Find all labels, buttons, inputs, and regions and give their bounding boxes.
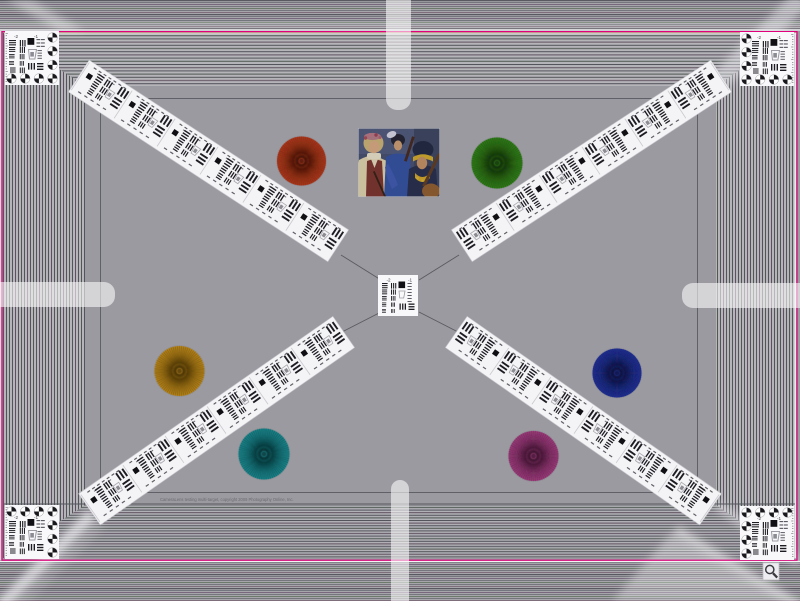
svg-text:-1: -1	[408, 278, 413, 283]
svg-text:CameraLens testing multi-targe: CameraLens testing multi-target, copyrig…	[160, 497, 294, 502]
svg-text:-2: -2	[387, 278, 392, 283]
